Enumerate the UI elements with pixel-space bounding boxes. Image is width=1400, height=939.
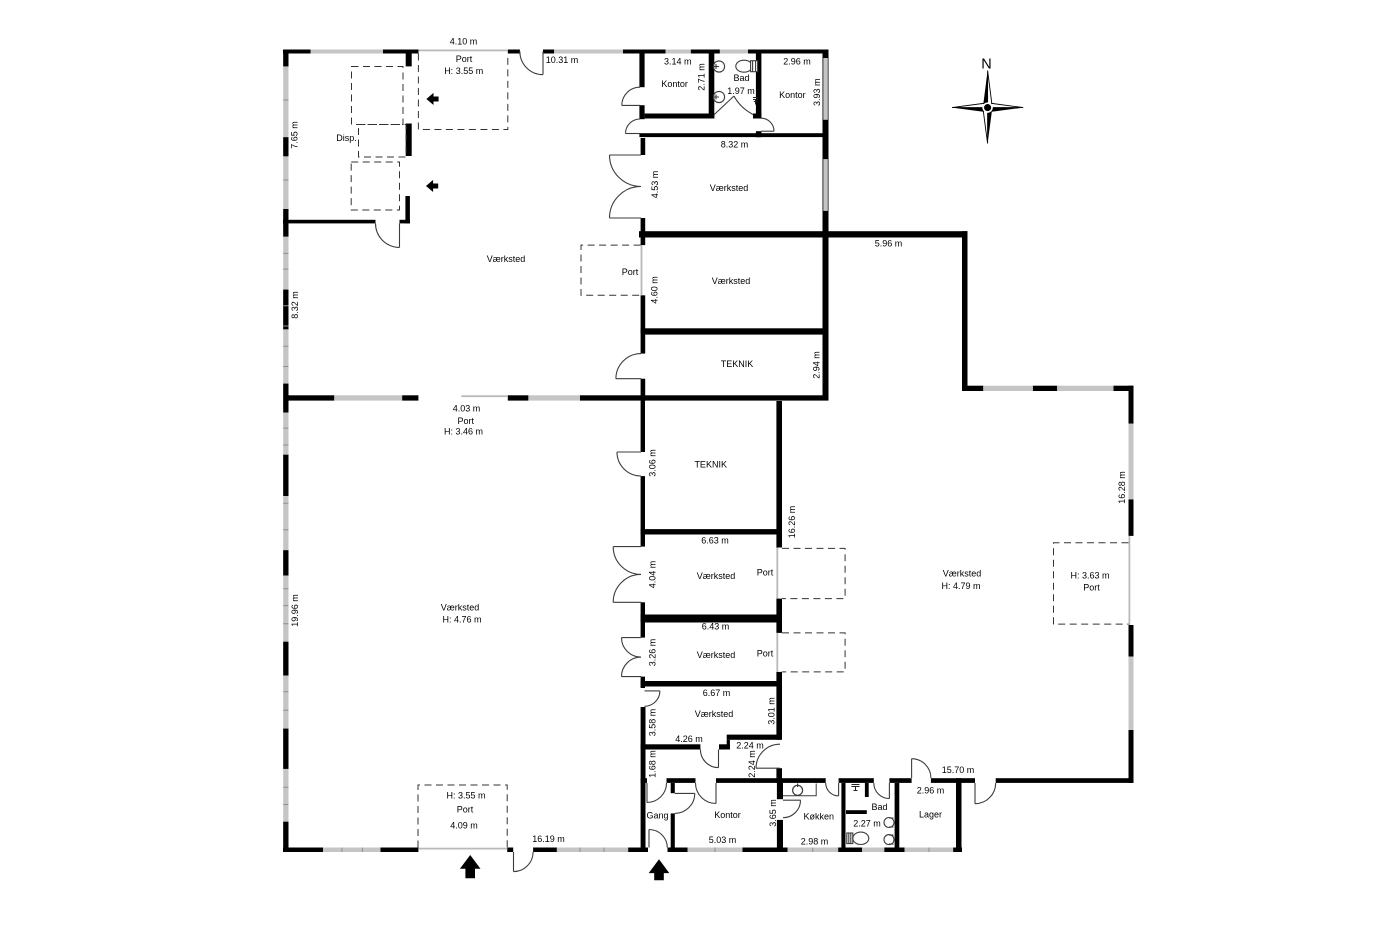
svg-text:H: 3.55 m: H: 3.55 m (444, 66, 483, 76)
svg-text:TEKNIK: TEKNIK (694, 460, 727, 470)
svg-text:3.65 m: 3.65 m (768, 799, 778, 827)
svg-text:3.58 m: 3.58 m (648, 709, 658, 737)
svg-text:Port: Port (1083, 583, 1100, 593)
svg-text:Værksted: Værksted (697, 650, 736, 660)
svg-text:3.06 m: 3.06 m (648, 449, 658, 477)
svg-text:Værksted: Værksted (441, 603, 480, 613)
svg-text:Værksted: Værksted (487, 254, 526, 264)
svg-text:2.24 m: 2.24 m (736, 741, 764, 751)
svg-text:Port: Port (757, 649, 774, 659)
svg-text:Køkken: Køkken (804, 812, 835, 822)
svg-text:8.32 m: 8.32 m (721, 140, 749, 150)
svg-text:1.97 m: 1.97 m (727, 86, 755, 96)
svg-text:Kontor: Kontor (779, 90, 806, 100)
svg-text:19.96 m: 19.96 m (290, 594, 300, 627)
svg-text:Port: Port (458, 416, 475, 426)
svg-text:Værksted: Værksted (712, 276, 751, 286)
svg-text:2.27 m: 2.27 m (853, 819, 881, 829)
svg-text:Port: Port (622, 267, 639, 277)
svg-text:6.43 m: 6.43 m (702, 622, 730, 632)
svg-text:4.09 m: 4.09 m (450, 821, 478, 831)
svg-text:H: 3.63 m: H: 3.63 m (1070, 571, 1109, 581)
svg-text:Port: Port (456, 54, 473, 64)
svg-text:16.28 m: 16.28 m (1117, 471, 1127, 504)
svg-text:TEKNIK: TEKNIK (721, 359, 754, 369)
svg-text:16.19 m: 16.19 m (532, 834, 565, 844)
svg-text:6.67 m: 6.67 m (703, 688, 731, 698)
svg-text:H: 3.46 m: H: 3.46 m (444, 427, 483, 437)
svg-text:8.32 m: 8.32 m (290, 291, 300, 319)
svg-text:Værksted: Værksted (697, 571, 736, 581)
svg-text:Værksted: Værksted (710, 183, 749, 193)
svg-text:5.03 m: 5.03 m (709, 835, 737, 845)
svg-text:4.03 m: 4.03 m (453, 404, 481, 414)
svg-text:Gang: Gang (646, 811, 668, 821)
svg-text:2.94 m: 2.94 m (812, 351, 822, 379)
svg-text:4.04 m: 4.04 m (648, 561, 658, 589)
svg-text:3.01 m: 3.01 m (767, 697, 777, 725)
svg-text:2.71 m: 2.71 m (697, 63, 707, 91)
svg-text:H: 4.79 m: H: 4.79 m (941, 581, 980, 591)
svg-text:3.26 m: 3.26 m (648, 639, 658, 667)
svg-text:Bad: Bad (733, 73, 749, 83)
svg-text:15.70 m: 15.70 m (942, 765, 975, 775)
svg-text:Port: Port (457, 805, 474, 815)
svg-text:2.98 m: 2.98 m (801, 837, 829, 847)
svg-text:2.24 m: 2.24 m (747, 750, 757, 778)
svg-text:Disp.: Disp. (336, 133, 357, 143)
svg-text:5.96 m: 5.96 m (875, 239, 903, 249)
svg-text:H: 4.76 m: H: 4.76 m (442, 615, 481, 625)
svg-text:H: 3.55 m: H: 3.55 m (446, 791, 485, 801)
svg-text:3.93 m: 3.93 m (812, 78, 822, 106)
svg-text:2.96 m: 2.96 m (917, 786, 945, 796)
svg-text:6.63 m: 6.63 m (701, 536, 729, 546)
svg-text:Lager: Lager (919, 810, 942, 820)
svg-text:1.68 m: 1.68 m (648, 750, 658, 778)
svg-text:Værksted: Værksted (695, 709, 734, 719)
svg-text:4.26 m: 4.26 m (675, 734, 703, 744)
svg-text:N: N (981, 57, 991, 73)
svg-text:10.31 m: 10.31 m (546, 55, 579, 65)
svg-text:Værksted: Værksted (943, 569, 982, 579)
svg-text:Kontor: Kontor (714, 810, 741, 820)
svg-text:4.53 m: 4.53 m (650, 171, 660, 199)
svg-text:2.96 m: 2.96 m (783, 57, 811, 67)
svg-text:4.10 m: 4.10 m (450, 37, 478, 47)
svg-text:7.65 m: 7.65 m (289, 121, 299, 149)
svg-text:16.26 m: 16.26 m (787, 506, 797, 539)
svg-text:3.14 m: 3.14 m (664, 57, 692, 67)
svg-text:Bad: Bad (871, 802, 887, 812)
svg-text:4.60 m: 4.60 m (650, 276, 660, 304)
svg-text:Port: Port (757, 568, 774, 578)
svg-text:Kontor: Kontor (661, 79, 688, 89)
